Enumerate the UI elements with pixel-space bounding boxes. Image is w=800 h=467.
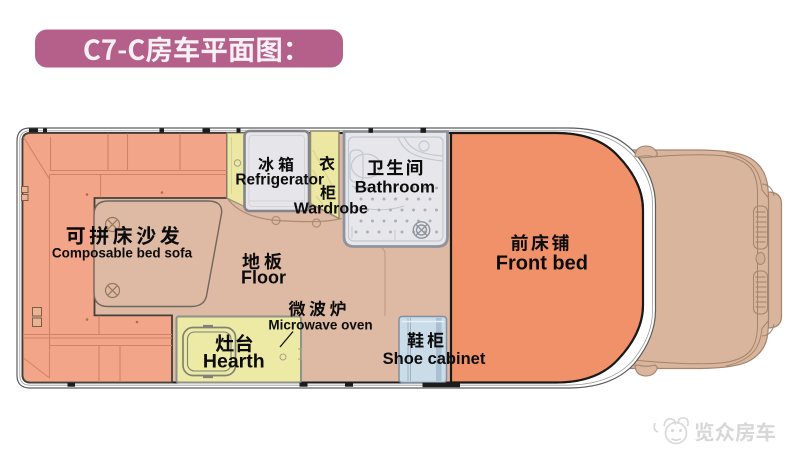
svg-text:Floor: Floor xyxy=(241,268,286,288)
svg-text:Front bed: Front bed xyxy=(496,253,588,275)
svg-text:Composable bed sofa: Composable bed sofa xyxy=(52,246,193,261)
svg-text:Hearth: Hearth xyxy=(203,350,265,372)
svg-text:Shoe cabinet: Shoe cabinet xyxy=(383,350,486,368)
svg-text:Microwave oven: Microwave oven xyxy=(268,318,372,333)
svg-text:Bathroom: Bathroom xyxy=(355,178,435,197)
svg-text:Wardrobe: Wardrobe xyxy=(294,200,368,217)
svg-text:Refrigerator: Refrigerator xyxy=(235,172,324,189)
